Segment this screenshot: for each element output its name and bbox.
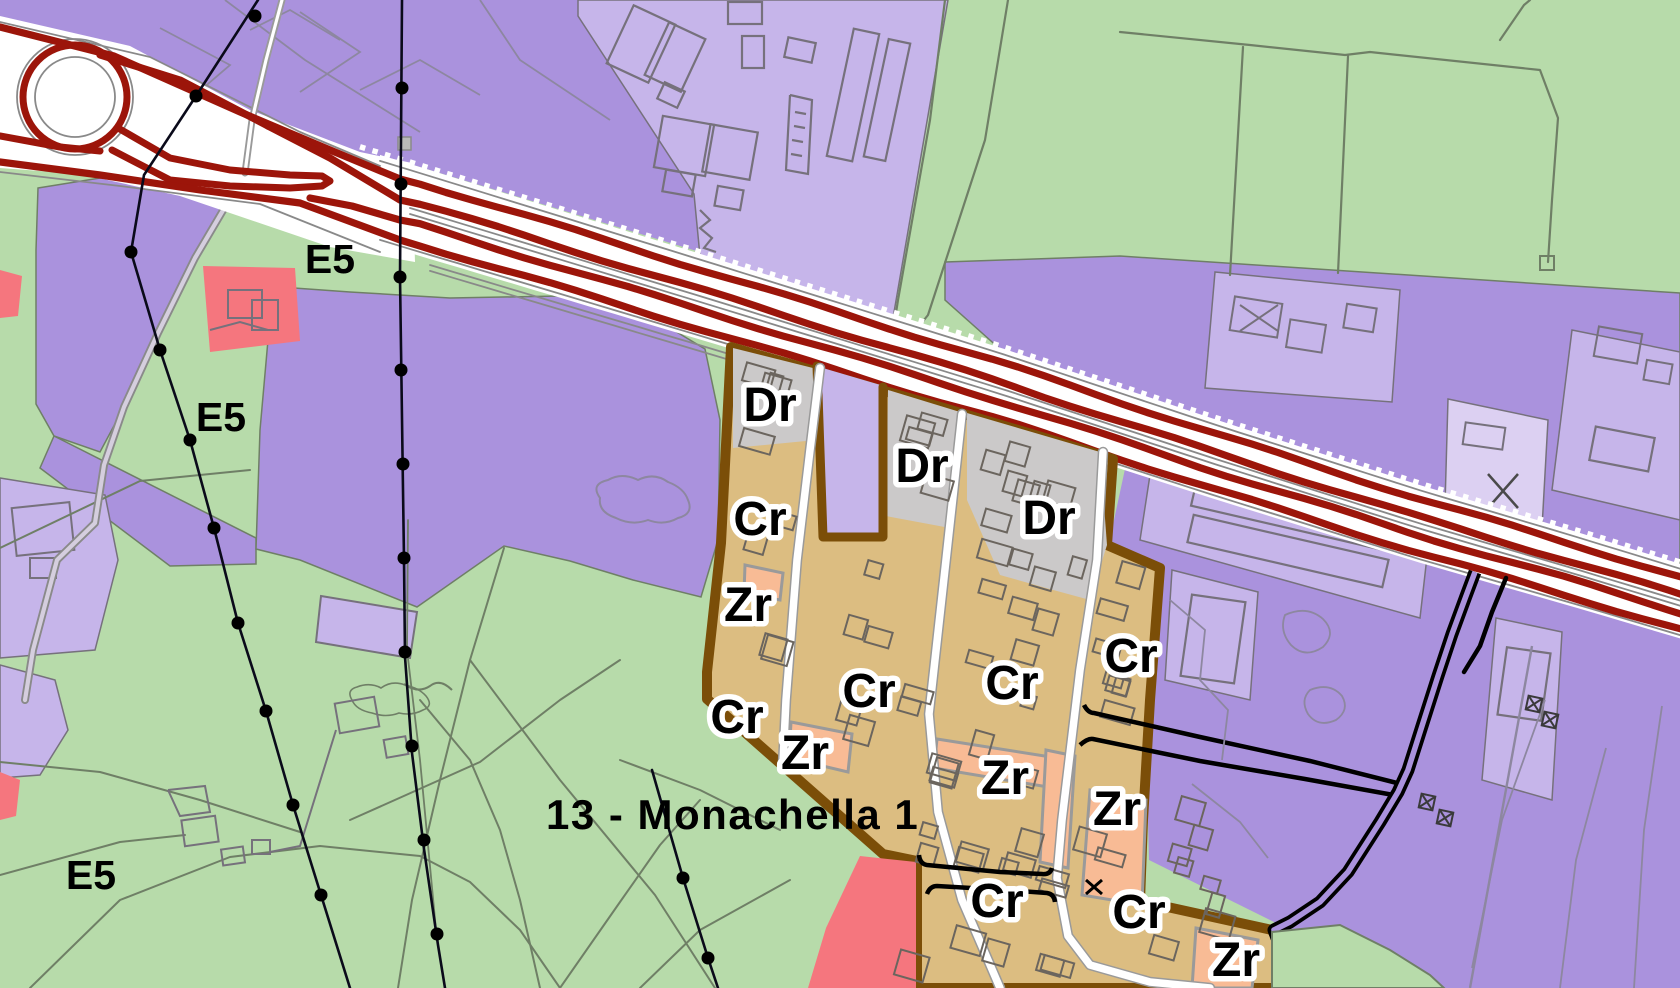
svg-text:E5: E5: [196, 394, 246, 440]
svg-text:Cr: Cr: [1104, 630, 1157, 683]
svg-text:Zr: Zr: [724, 579, 772, 632]
svg-text:Dr: Dr: [1022, 492, 1075, 545]
svg-text:Zr: Zr: [981, 752, 1029, 805]
svg-text:Zr: Zr: [1212, 934, 1260, 987]
svg-text:13 - Monachella 1: 13 - Monachella 1: [546, 791, 919, 838]
svg-text:Cr: Cr: [985, 657, 1038, 710]
svg-text:Cr: Cr: [710, 691, 763, 744]
svg-text:Dr: Dr: [743, 379, 796, 432]
svg-text:Zr: Zr: [781, 727, 829, 780]
svg-text:Zr: Zr: [1093, 783, 1141, 836]
svg-text:Cr: Cr: [733, 493, 786, 546]
svg-text:Dr: Dr: [895, 440, 948, 493]
svg-text:Cr: Cr: [1112, 886, 1165, 939]
svg-text:E5: E5: [66, 852, 116, 898]
svg-text:E5: E5: [305, 236, 355, 282]
svg-text:Cr: Cr: [970, 875, 1023, 928]
svg-text:Cr: Cr: [842, 665, 895, 718]
